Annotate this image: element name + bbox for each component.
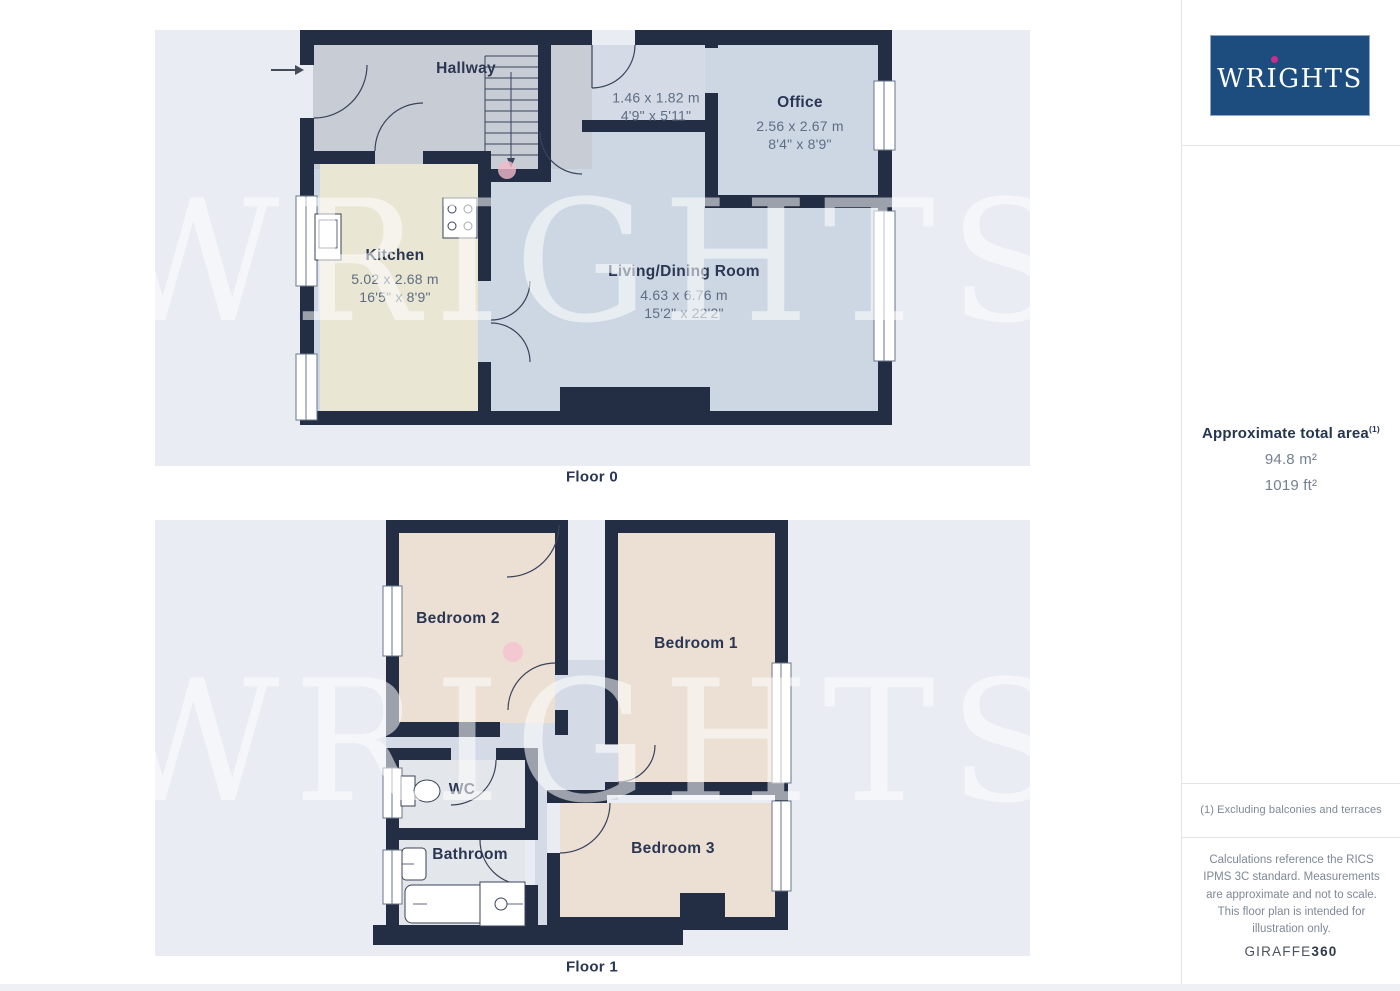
total-area-block: Approximate total area(1) 94.8 m² 1019 f… (1182, 424, 1400, 494)
sidebar-divider (1182, 145, 1400, 146)
area-footnote: (1) Excluding balconies and terraces (1182, 804, 1400, 816)
logo-dot-icon (1271, 56, 1278, 63)
wrights-logo-text: WRIGHTS (1217, 64, 1363, 94)
disclaimer-text: Calculations reference the RICS IPMS 3C … (1199, 852, 1384, 938)
total-area-metric: 94.8 m² (1182, 451, 1400, 468)
floor0-panel: Hallway 1.46 x 1.82 m 4'9" x 5'11" Offic… (155, 30, 1030, 466)
page: Hallway 1.46 x 1.82 m 4'9" x 5'11" Offic… (0, 0, 1400, 991)
floorplan-area: Hallway 1.46 x 1.82 m 4'9" x 5'11" Offic… (0, 0, 1181, 991)
bottom-strip (0, 984, 1400, 991)
sidebar-divider (1182, 837, 1400, 838)
floor1-drawing (155, 520, 1030, 956)
floor0-drawing (155, 30, 1030, 466)
sidebar-divider (1182, 783, 1400, 784)
floor1-label: Floor 1 (566, 959, 618, 976)
giraffe360-brand: GIRAFFE360 (1182, 944, 1400, 959)
floor1-panel: Bedroom 2 Bedroom 1 WC Bathroom Bedroom … (155, 520, 1030, 956)
entrance-arrow-icon (271, 65, 304, 75)
floor0-label: Floor 0 (566, 469, 618, 486)
footnote-marker: (1) (1369, 424, 1380, 434)
total-area-imperial: 1019 ft² (1182, 477, 1400, 494)
wrights-logo: WRIGHTS (1210, 35, 1370, 116)
sidebar: WRIGHTS Approximate total area(1) 94.8 m… (1181, 0, 1400, 991)
total-area-title: Approximate total area(1) (1182, 424, 1400, 442)
